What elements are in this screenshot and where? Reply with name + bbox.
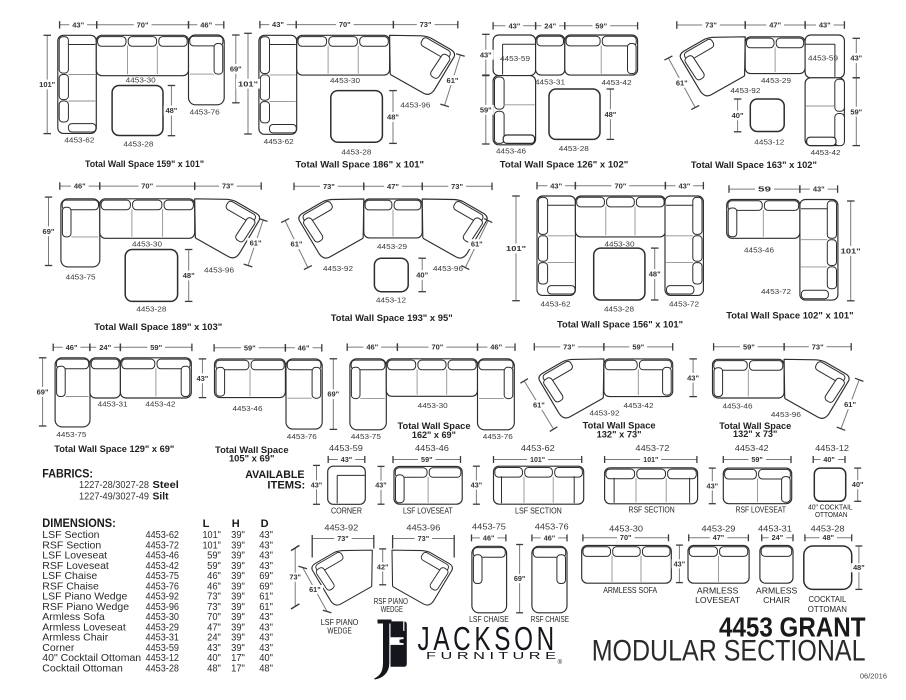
svg-text:101": 101" xyxy=(39,80,56,89)
svg-text:43": 43" xyxy=(311,482,323,489)
svg-text:47": 47" xyxy=(713,535,725,542)
svg-text:4453-28: 4453-28 xyxy=(136,305,166,314)
svg-text:48": 48" xyxy=(604,110,616,119)
svg-text:70": 70" xyxy=(137,20,149,29)
svg-text:1227-49/3027-49: 1227-49/3027-49 xyxy=(79,491,149,503)
svg-text:4453-92: 4453-92 xyxy=(324,523,359,532)
svg-text:132" x 73": 132" x 73" xyxy=(733,429,777,440)
svg-text:69": 69" xyxy=(514,576,526,583)
svg-text:4453-46: 4453-46 xyxy=(496,147,526,156)
svg-text:43": 43" xyxy=(341,457,353,464)
svg-text:4453-29: 4453-29 xyxy=(377,242,407,251)
svg-text:43": 43" xyxy=(196,374,208,383)
svg-text:4453-46: 4453-46 xyxy=(415,444,450,453)
svg-text:4453-30: 4453-30 xyxy=(609,525,644,534)
svg-text:RSF SECTION: RSF SECTION xyxy=(629,505,675,514)
svg-text:4453-46: 4453-46 xyxy=(723,402,753,411)
svg-text:73": 73" xyxy=(289,575,301,582)
svg-text:4453-59: 4453-59 xyxy=(329,444,364,453)
svg-text:70": 70" xyxy=(141,182,153,191)
svg-text:COCKTAIL: COCKTAIL xyxy=(809,595,847,604)
svg-text:LSF SECTION: LSF SECTION xyxy=(515,506,562,515)
svg-text:69": 69" xyxy=(37,388,49,397)
svg-text:43": 43" xyxy=(819,21,831,30)
svg-text:43": 43" xyxy=(687,373,699,382)
svg-text:24": 24" xyxy=(99,343,111,352)
svg-text:4453-75: 4453-75 xyxy=(56,430,86,439)
svg-text:4453-30: 4453-30 xyxy=(418,401,448,410)
svg-text:CHAIR: CHAIR xyxy=(763,596,790,605)
svg-text:69": 69" xyxy=(43,227,55,236)
svg-text:46": 46" xyxy=(366,343,378,352)
svg-text:73": 73" xyxy=(418,536,430,543)
svg-text:LOVESEAT: LOVESEAT xyxy=(695,596,740,605)
svg-text:4453-96: 4453-96 xyxy=(771,410,801,419)
svg-text:4453-28: 4453-28 xyxy=(146,662,180,674)
svg-text:Silt: Silt xyxy=(153,491,169,503)
svg-text:69": 69" xyxy=(230,65,242,74)
svg-text:43": 43" xyxy=(480,50,492,59)
svg-text:4453-62: 4453-62 xyxy=(64,136,94,145)
svg-text:Total Wall Space 102" x 101": Total Wall Space 102" x 101" xyxy=(726,311,853,322)
svg-text:59": 59" xyxy=(421,457,433,464)
svg-text:105" x 69": 105" x 69" xyxy=(229,453,275,464)
svg-text:46": 46" xyxy=(298,343,310,352)
svg-text:MODULAR SECTIONAL: MODULAR SECTIONAL xyxy=(592,635,866,668)
svg-text:59": 59" xyxy=(751,457,763,464)
svg-text:ITEMS:: ITEMS: xyxy=(267,479,305,491)
svg-text:4453-28: 4453-28 xyxy=(123,139,153,148)
svg-text:70": 70" xyxy=(431,343,443,352)
svg-text:CORNER: CORNER xyxy=(331,506,362,515)
svg-text:101": 101" xyxy=(530,457,545,464)
svg-text:4453-42: 4453-42 xyxy=(624,401,654,410)
svg-text:4453-59: 4453-59 xyxy=(808,54,838,63)
svg-text:46": 46" xyxy=(74,182,86,191)
svg-text:43": 43" xyxy=(72,20,84,29)
svg-text:48": 48" xyxy=(207,662,221,674)
svg-text:4453-12: 4453-12 xyxy=(376,296,406,305)
svg-text:4453-75: 4453-75 xyxy=(351,432,381,441)
svg-text:4453-31: 4453-31 xyxy=(535,77,565,86)
svg-text:4453-96: 4453-96 xyxy=(406,523,441,532)
svg-text:4453-30: 4453-30 xyxy=(132,240,162,249)
svg-text:43": 43" xyxy=(678,181,690,190)
svg-text:101": 101" xyxy=(643,457,658,464)
svg-text:43": 43" xyxy=(375,483,387,490)
svg-text:43": 43" xyxy=(272,20,284,29)
svg-text:59": 59" xyxy=(632,343,644,352)
svg-text:Total Wall Space 126" x 102": Total Wall Space 126" x 102" xyxy=(500,160,629,171)
svg-text:47": 47" xyxy=(387,182,399,191)
svg-text:4453-72: 4453-72 xyxy=(635,444,670,453)
svg-text:61": 61" xyxy=(250,238,262,247)
svg-text:WEDGE: WEDGE xyxy=(327,627,351,636)
svg-text:4453-31: 4453-31 xyxy=(758,525,793,534)
svg-text:73": 73" xyxy=(812,342,824,351)
svg-text:59: 59 xyxy=(758,185,771,194)
svg-text:59": 59" xyxy=(595,21,607,30)
svg-text:4453-76: 4453-76 xyxy=(190,107,220,116)
svg-text:24": 24" xyxy=(544,21,556,30)
svg-text:17": 17" xyxy=(231,662,245,674)
svg-text:4453-12: 4453-12 xyxy=(754,137,784,146)
svg-text:48": 48" xyxy=(165,106,177,115)
svg-text:4453-96: 4453-96 xyxy=(433,264,463,273)
svg-text:4453-92: 4453-92 xyxy=(590,409,620,418)
svg-text:LSF PIANO: LSF PIANO xyxy=(321,618,359,627)
svg-text:4453-28: 4453-28 xyxy=(811,525,846,534)
svg-text:46": 46" xyxy=(483,535,495,542)
svg-text:70": 70" xyxy=(620,535,632,542)
svg-text:43": 43" xyxy=(471,483,483,490)
svg-text:61": 61" xyxy=(844,400,856,409)
svg-text:4453-30: 4453-30 xyxy=(605,240,635,249)
svg-text:61": 61" xyxy=(447,76,459,85)
svg-text:4453-42: 4453-42 xyxy=(735,444,770,453)
svg-text:OTTOMAN: OTTOMAN xyxy=(815,512,847,519)
svg-text:48": 48" xyxy=(853,565,865,572)
svg-text:4453-76: 4453-76 xyxy=(483,432,513,441)
svg-text:4453-72: 4453-72 xyxy=(761,287,791,296)
svg-text:73": 73" xyxy=(420,20,432,29)
svg-text:Total Wall Space 186" x 101": Total Wall Space 186" x 101" xyxy=(296,160,425,171)
svg-text:43": 43" xyxy=(813,185,825,194)
svg-text:4453-42: 4453-42 xyxy=(145,400,175,409)
svg-text:46": 46" xyxy=(544,535,556,542)
svg-text:73": 73" xyxy=(563,343,575,352)
svg-text:F U R N I T U R E: F U R N I T U R E xyxy=(426,651,557,662)
svg-text:ARMLESS: ARMLESS xyxy=(756,586,797,595)
svg-text:4453-62: 4453-62 xyxy=(521,444,556,453)
svg-text:59": 59" xyxy=(480,105,492,114)
svg-text:4453-96: 4453-96 xyxy=(204,265,234,274)
svg-text:61": 61" xyxy=(291,240,303,249)
svg-text:40": 40" xyxy=(732,111,744,120)
svg-text:Total Wall Space 129" x 69": Total Wall Space 129" x 69" xyxy=(54,444,174,455)
svg-text:4453-75: 4453-75 xyxy=(66,272,96,281)
svg-text:4453-28: 4453-28 xyxy=(559,144,589,153)
svg-text:®: ® xyxy=(558,659,563,666)
svg-text:4453-62: 4453-62 xyxy=(541,300,571,309)
svg-text:73": 73" xyxy=(451,182,463,191)
svg-text:40": 40" xyxy=(852,482,864,489)
svg-text:43": 43" xyxy=(707,483,719,490)
svg-text:4453-31: 4453-31 xyxy=(98,400,128,409)
svg-text:Total Wall Space 159" x 101": Total Wall Space 159" x 101" xyxy=(85,159,204,170)
svg-text:40": 40" xyxy=(823,457,835,464)
svg-text:61": 61" xyxy=(533,401,545,410)
svg-text:1227-28/3027-28: 1227-28/3027-28 xyxy=(79,479,149,491)
svg-text:46": 46" xyxy=(66,343,78,352)
svg-text:43": 43" xyxy=(508,21,520,30)
svg-text:70": 70" xyxy=(614,181,626,190)
svg-text:43": 43" xyxy=(674,561,686,568)
svg-text:4453-28: 4453-28 xyxy=(341,147,371,156)
svg-text:RSF LOVESEAT: RSF LOVESEAT xyxy=(736,505,786,514)
svg-text:40" COCKTAIL: 40" COCKTAIL xyxy=(808,504,853,511)
svg-text:4453-92: 4453-92 xyxy=(730,86,760,95)
svg-text:4453-28: 4453-28 xyxy=(604,305,634,314)
svg-text:4453-46: 4453-46 xyxy=(744,246,774,255)
svg-text:4453-72: 4453-72 xyxy=(669,299,699,308)
svg-text:48": 48" xyxy=(259,662,273,674)
svg-text:4453-29: 4453-29 xyxy=(761,76,791,85)
svg-text:42": 42" xyxy=(377,564,389,571)
svg-text:61": 61" xyxy=(676,78,688,87)
svg-text:70": 70" xyxy=(339,20,351,29)
svg-text:06/2016: 06/2016 xyxy=(860,671,887,680)
svg-text:59": 59" xyxy=(743,342,755,351)
svg-text:73": 73" xyxy=(705,21,717,30)
svg-text:4453-30: 4453-30 xyxy=(330,76,360,85)
svg-text:4453-46: 4453-46 xyxy=(233,404,263,413)
svg-text:69": 69" xyxy=(327,390,339,399)
svg-text:Total Wall Space 189" x 103": Total Wall Space 189" x 103" xyxy=(94,322,222,333)
svg-text:61": 61" xyxy=(471,240,483,249)
svg-text:4453-42: 4453-42 xyxy=(811,148,841,157)
svg-text:40": 40" xyxy=(416,271,428,280)
svg-text:73": 73" xyxy=(222,182,234,191)
svg-text:Total Wall Space 156" x 101": Total Wall Space 156" x 101" xyxy=(557,320,683,331)
svg-text:LSF LOVESEAT: LSF LOVESEAT xyxy=(403,506,453,515)
svg-text:DIMENSIONS:: DIMENSIONS: xyxy=(42,516,116,530)
svg-text:132" x 73": 132" x 73" xyxy=(597,430,642,441)
svg-text:Cocktail Ottoman: Cocktail Ottoman xyxy=(42,662,123,674)
svg-text:73": 73" xyxy=(323,182,335,191)
svg-text:4453-92: 4453-92 xyxy=(323,264,353,273)
svg-text:59": 59" xyxy=(850,107,862,116)
svg-text:4453-30: 4453-30 xyxy=(126,76,156,85)
svg-text:101": 101" xyxy=(506,244,527,253)
svg-text:4453-59: 4453-59 xyxy=(500,54,530,63)
svg-text:48": 48" xyxy=(649,270,661,279)
svg-text:Total Wall Space 163" x 102": Total Wall Space 163" x 102" xyxy=(691,160,817,171)
svg-text:43": 43" xyxy=(550,181,562,190)
svg-text:101": 101" xyxy=(238,79,259,88)
svg-text:Steel: Steel xyxy=(153,479,179,491)
svg-text:46": 46" xyxy=(490,343,502,352)
svg-text:46": 46" xyxy=(200,20,212,29)
svg-text:ARMLESS SOFA: ARMLESS SOFA xyxy=(603,586,658,595)
svg-text:4453-96: 4453-96 xyxy=(400,100,430,109)
svg-text:48": 48" xyxy=(823,535,835,542)
svg-text:73": 73" xyxy=(337,536,349,543)
svg-text:Total Wall Space 193" x 95": Total Wall Space 193" x 95" xyxy=(331,313,453,324)
svg-text:4453-29: 4453-29 xyxy=(702,525,737,534)
svg-text:101": 101" xyxy=(841,247,862,256)
svg-text:43": 43" xyxy=(850,54,862,63)
svg-text:24": 24" xyxy=(772,535,784,542)
svg-text:47": 47" xyxy=(769,21,781,30)
svg-text:61": 61" xyxy=(309,587,321,594)
svg-text:59": 59" xyxy=(150,343,162,352)
svg-text:4453-62: 4453-62 xyxy=(264,137,294,146)
svg-text:ARMLESS: ARMLESS xyxy=(697,586,738,595)
svg-text:59": 59" xyxy=(244,343,256,352)
svg-text:4453-76: 4453-76 xyxy=(535,523,570,532)
svg-text:WEDGE: WEDGE xyxy=(381,605,403,614)
svg-text:4453-76: 4453-76 xyxy=(287,432,317,441)
svg-text:162" x 69": 162" x 69" xyxy=(412,430,456,441)
svg-text:48": 48" xyxy=(387,113,399,122)
svg-text:4453-75: 4453-75 xyxy=(472,523,507,532)
svg-text:4453-12: 4453-12 xyxy=(815,444,850,453)
svg-text:4453-42: 4453-42 xyxy=(602,78,632,87)
svg-text:48": 48" xyxy=(183,271,195,280)
